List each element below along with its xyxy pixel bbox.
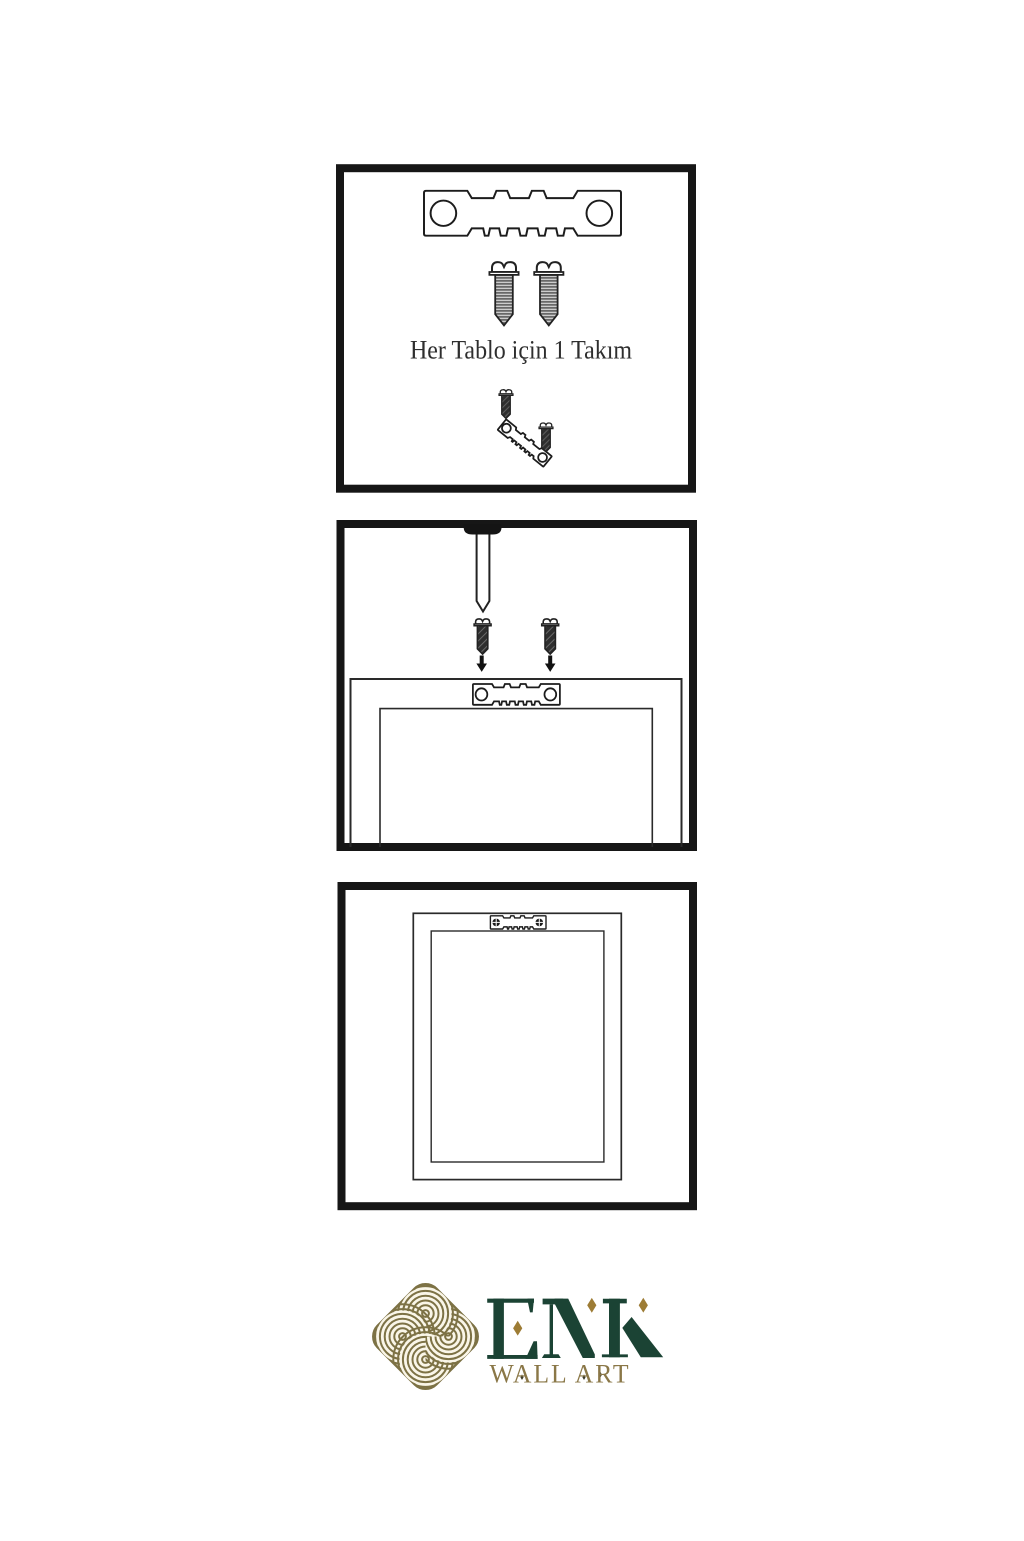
svg-text:Her Tablo için 1 Takım: Her Tablo için 1 Takım xyxy=(410,336,632,365)
svg-text:WALL ART: WALL ART xyxy=(490,1360,631,1389)
